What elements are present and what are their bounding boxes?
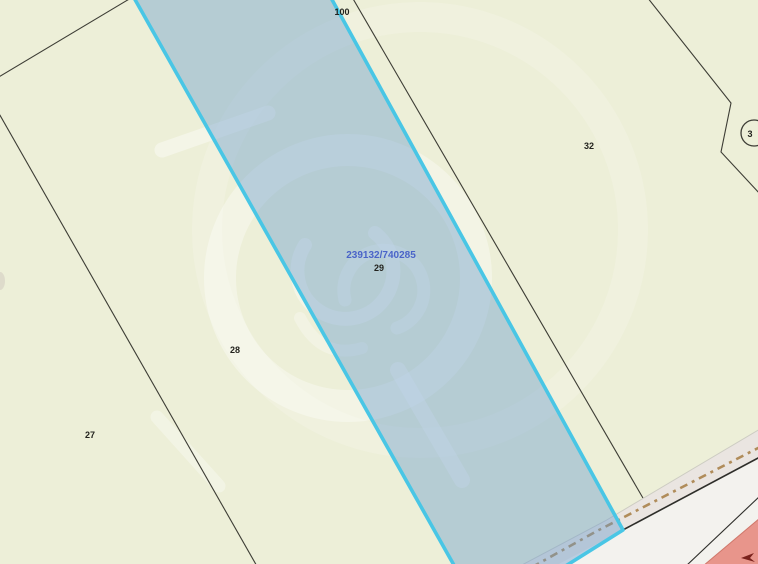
parcel-label-29: 29 [374,263,384,273]
selected-parcel-coordinates: 239132/740285 [346,250,416,261]
parcel-label-28: 28 [230,345,240,355]
parcel-label-27: 27 [85,430,95,440]
parcel-label-100: 100 [334,7,349,17]
circled-parcel-number: 3 [747,129,752,139]
cadastral-map-canvas[interactable]: 3 100 32 239132/740285 29 28 27 [0,0,758,564]
parcel-label-32: 32 [584,141,594,151]
cadastral-map-viewport[interactable]: 3 100 32 239132/740285 29 28 27 [0,0,758,564]
